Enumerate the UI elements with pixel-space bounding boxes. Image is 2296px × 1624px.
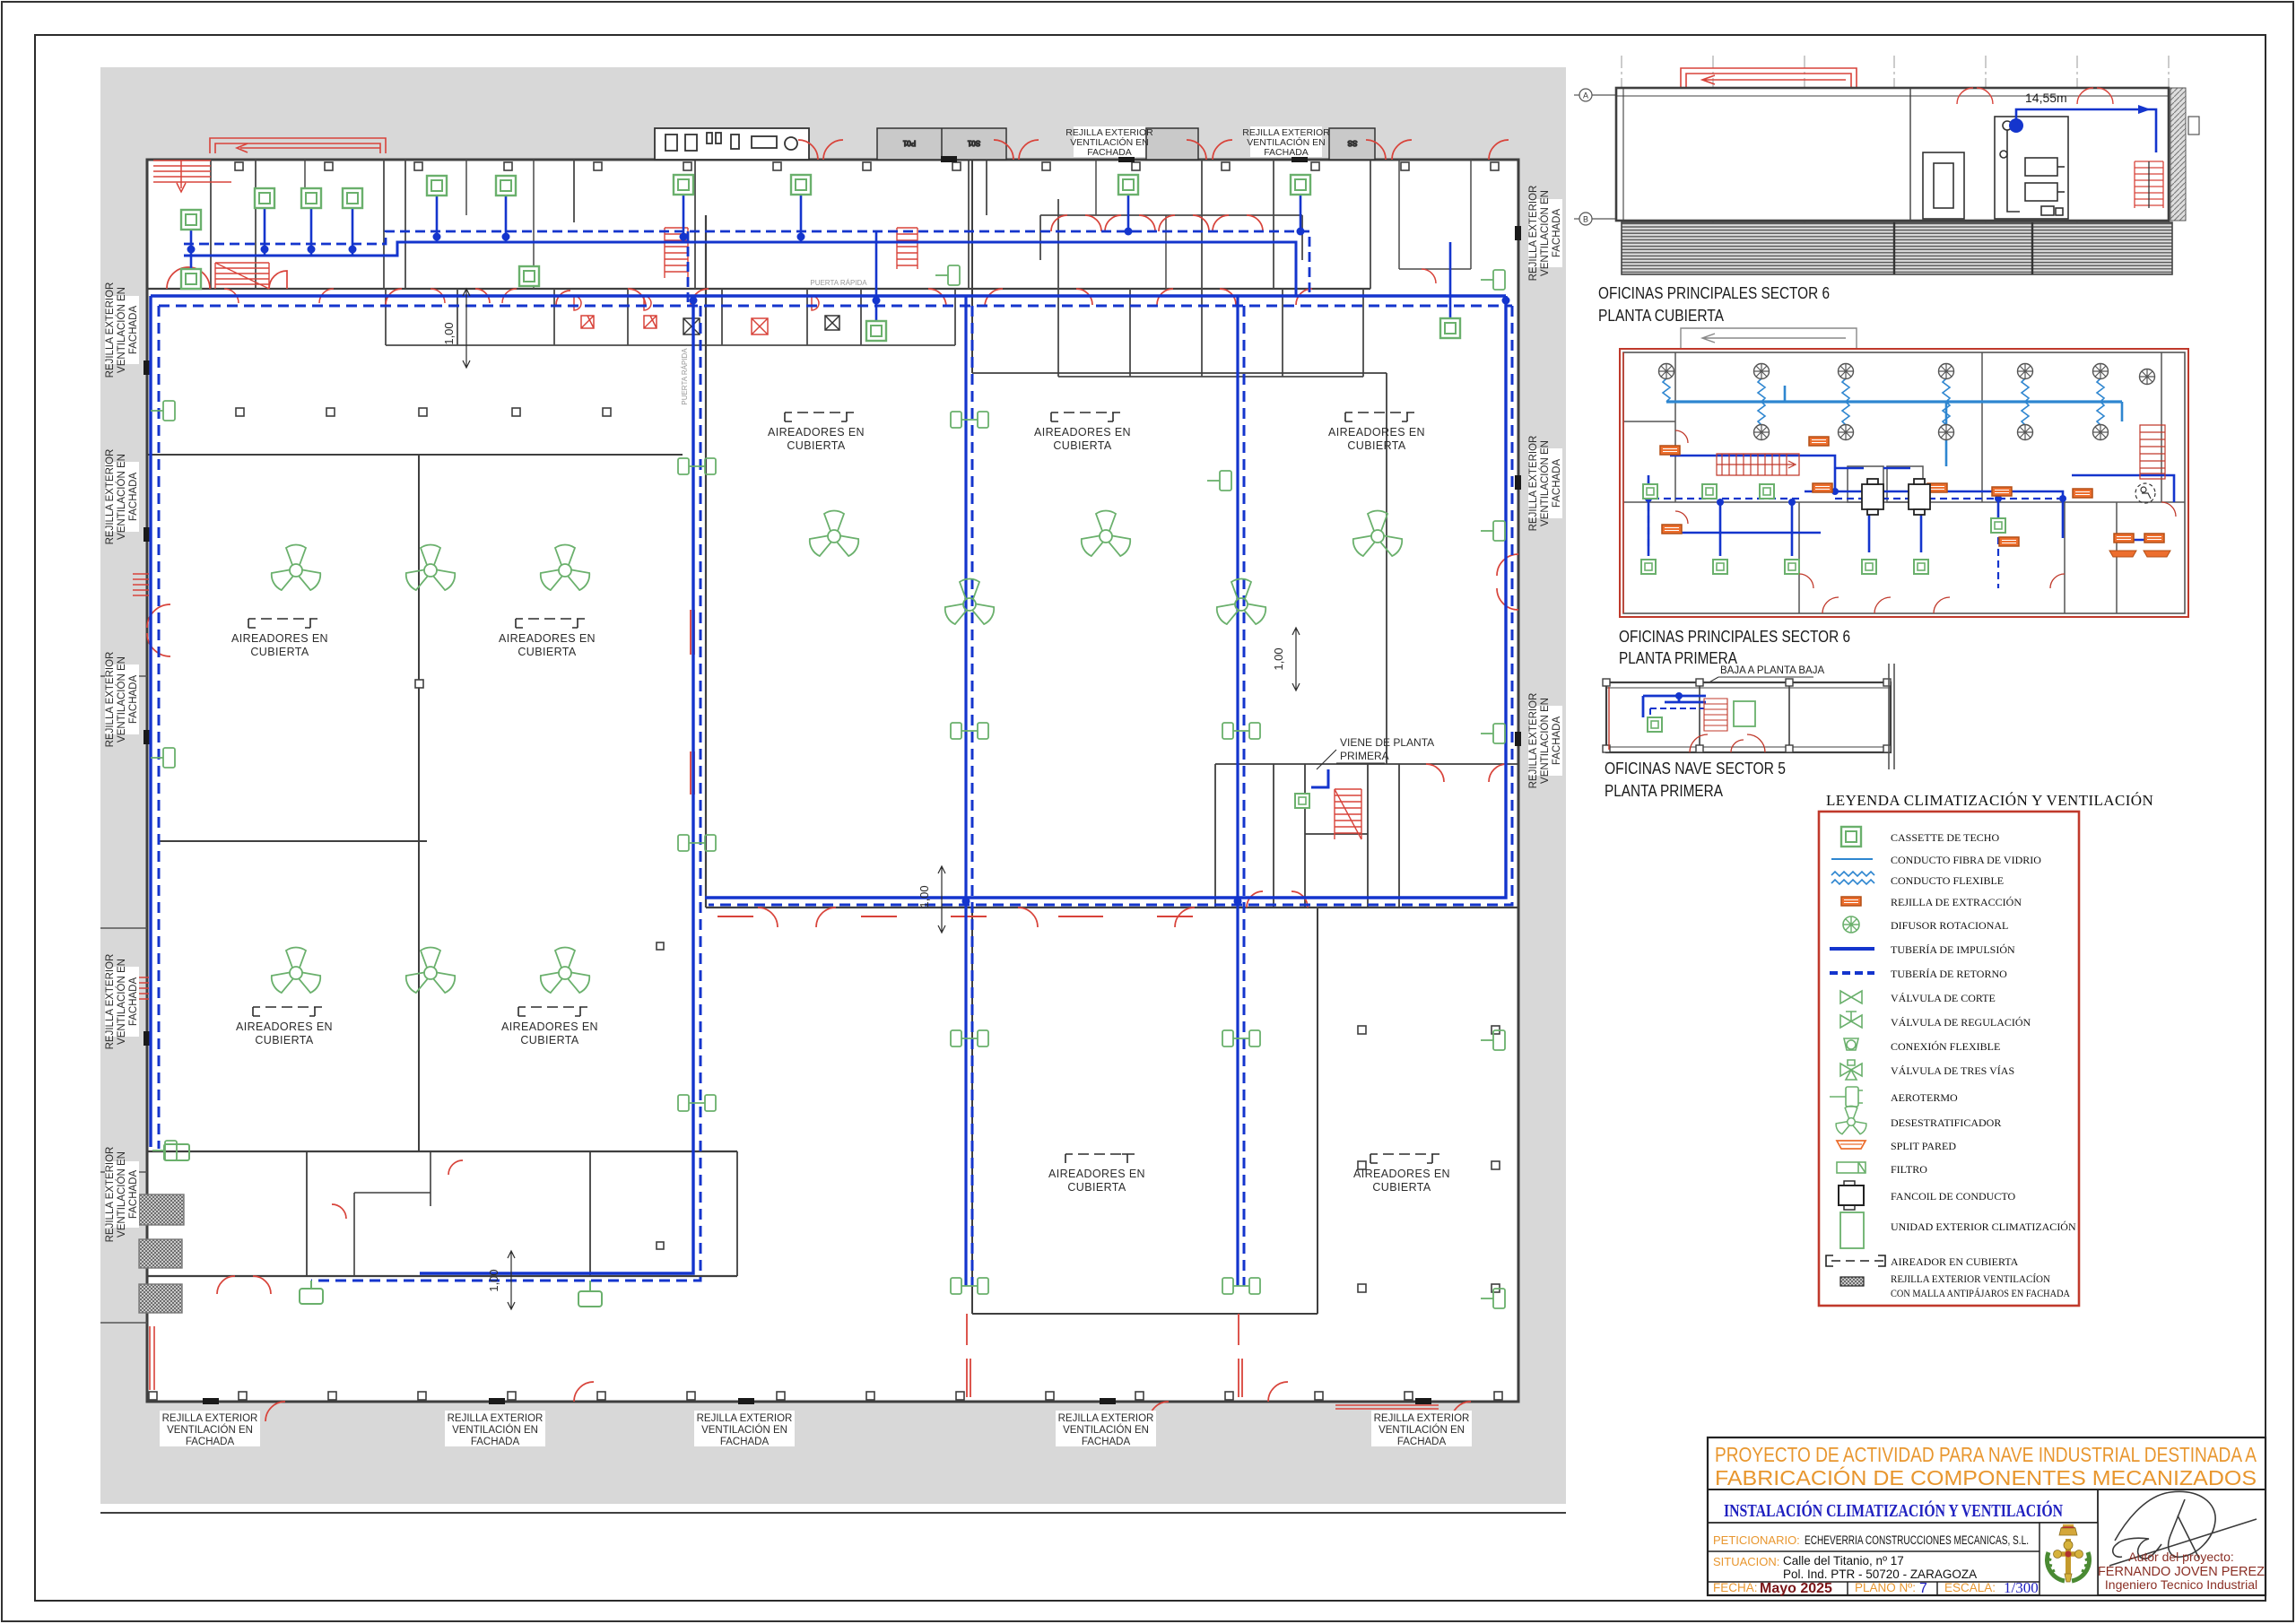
svg-text:AIREADORES EN: AIREADORES EN	[768, 426, 865, 439]
svg-text:VIENE DE PLANTA: VIENE DE PLANTA	[1340, 736, 1434, 749]
svg-text:OFICINAS PRINCIPALES SECTOR 6: OFICINAS PRINCIPALES SECTOR 6	[1598, 284, 1830, 302]
svg-text:SITUACION:: SITUACION:	[1713, 1555, 1779, 1568]
svg-text:AIREADORES EN: AIREADORES EN	[1048, 1168, 1145, 1180]
svg-text:CUBIERTA: CUBIERTA	[250, 646, 309, 658]
svg-text:S01: S01	[967, 139, 980, 147]
svg-text:REJILLA EXTERIOR VENTILACÍON: REJILLA EXTERIOR VENTILACÍON	[1891, 1272, 2050, 1285]
svg-text:TUBERÍA DE IMPULSIÓN: TUBERÍA DE IMPULSIÓN	[1891, 943, 2015, 956]
svg-text:AIREADORES EN: AIREADORES EN	[1328, 426, 1425, 439]
svg-text:CUBIERTA: CUBIERTA	[520, 1034, 579, 1046]
svg-text:Pol. Ind. PTR - 50720 - ZARAGO: Pol. Ind. PTR - 50720 - ZARAGOZA	[1783, 1568, 1977, 1581]
svg-text:VÁLVULA DE REGULACIÓN: VÁLVULA DE REGULACIÓN	[1891, 1016, 2031, 1029]
svg-text:PLANTA PRIMERA: PLANTA PRIMERA	[1605, 782, 1723, 800]
svg-text:AEROTERMO: AEROTERMO	[1891, 1091, 1958, 1104]
svg-text:1,00: 1,00	[442, 322, 456, 344]
svg-text:1,00: 1,00	[1272, 647, 1285, 670]
svg-text:CASSETTE DE TECHO: CASSETTE DE TECHO	[1891, 831, 1999, 844]
svg-text:SPLIT PARED: SPLIT PARED	[1891, 1140, 1956, 1152]
svg-text:FILTRO: FILTRO	[1891, 1163, 1927, 1176]
svg-text:AIREADORES EN: AIREADORES EN	[1034, 426, 1131, 439]
svg-text:TUBERÍA DE RETORNO: TUBERÍA DE RETORNO	[1891, 968, 2007, 980]
svg-text:1,00: 1,00	[918, 885, 931, 908]
svg-text:FABRICACIÓN DE COMPONENTES MEC: FABRICACIÓN DE COMPONENTES MECANIZADOS	[1715, 1466, 2257, 1489]
svg-text:FECHA:: FECHA:	[1713, 1581, 1758, 1594]
svg-text:P01: P01	[902, 139, 916, 147]
svg-text:PRIMERA: PRIMERA	[1340, 750, 1389, 762]
svg-text:Mayo 2025: Mayo 2025	[1760, 1581, 1832, 1596]
svg-text:REJILLA DE EXTRACCIÓN: REJILLA DE EXTRACCIÓN	[1891, 896, 2022, 908]
svg-text:UNIDAD EXTERIOR CLIMATIZACIÓN: UNIDAD EXTERIOR CLIMATIZACIÓN	[1891, 1220, 2076, 1233]
svg-text:PLANO Nº:: PLANO Nº:	[1855, 1581, 1916, 1594]
svg-text:Calle del Titanio, nº 17: Calle del Titanio, nº 17	[1783, 1554, 1904, 1568]
svg-text:14,55m: 14,55m	[2025, 91, 2067, 105]
svg-text:OFICINAS NAVE SECTOR 5: OFICINAS NAVE SECTOR 5	[1605, 760, 1786, 777]
svg-text:CONDUCTO FLEXIBLE: CONDUCTO FLEXIBLE	[1891, 874, 2004, 887]
svg-text:CUBIERTA: CUBIERTA	[1347, 439, 1406, 452]
svg-text:PLANTA PRIMERA: PLANTA PRIMERA	[1619, 649, 1737, 667]
svg-text:CUBIERTA: CUBIERTA	[255, 1034, 314, 1046]
svg-text:VÁLVULA DE CORTE: VÁLVULA DE CORTE	[1891, 992, 1996, 1004]
svg-text:FANCOIL DE CONDUCTO: FANCOIL DE CONDUCTO	[1891, 1190, 2015, 1203]
svg-text:CUBIERTA: CUBIERTA	[1053, 439, 1112, 452]
svg-text:PUERTA RÁPIDA: PUERTA RÁPIDA	[810, 279, 867, 287]
svg-text:1/300: 1/300	[2004, 1579, 2039, 1596]
svg-text:7: 7	[1919, 1581, 1927, 1596]
svg-text:1,00: 1,00	[487, 1269, 500, 1291]
svg-text:AIREADORES EN: AIREADORES EN	[231, 632, 328, 645]
svg-text:AIREADORES EN: AIREADORES EN	[1353, 1168, 1450, 1180]
svg-text:DESESTRATIFICADOR: DESESTRATIFICADOR	[1891, 1116, 2001, 1129]
svg-text:CUBIERTA: CUBIERTA	[1372, 1181, 1431, 1194]
svg-text:LEYENDA CLIMATIZACIÓN Y VENTIL: LEYENDA CLIMATIZACIÓN Y VENTILACIÓN	[1826, 792, 2153, 809]
svg-text:CON MALLA ANTIPÁJAROS EN FACHA: CON MALLA ANTIPÁJAROS EN FACHADA	[1891, 1287, 2070, 1299]
svg-text:DIFUSOR ROTACIONAL: DIFUSOR ROTACIONAL	[1891, 919, 2008, 932]
svg-text:BAJA A PLANTA BAJA: BAJA A PLANTA BAJA	[1720, 665, 1824, 676]
svg-text:CUBIERTA: CUBIERTA	[517, 646, 577, 658]
svg-text:VÁLVULA DE TRES VÍAS: VÁLVULA DE TRES VÍAS	[1891, 1064, 2014, 1077]
svg-text:Autor del proyecto:: Autor del proyecto:	[2128, 1550, 2234, 1564]
svg-text:Ingeniero Tecnico Industrial: Ingeniero Tecnico Industrial	[2105, 1577, 2257, 1592]
svg-text:A: A	[1583, 91, 1588, 100]
svg-text:AIREADOR EN CUBIERTA: AIREADOR EN CUBIERTA	[1891, 1255, 2019, 1268]
svg-text:B: B	[1583, 215, 1588, 224]
svg-text:SS: SS	[1348, 139, 1358, 147]
svg-text:CONDUCTO FIBRA DE VIDRIO: CONDUCTO FIBRA DE VIDRIO	[1891, 854, 2041, 866]
svg-text:ESCALA:: ESCALA:	[1944, 1581, 1996, 1594]
svg-text:CONEXIÓN FLEXIBLE: CONEXIÓN FLEXIBLE	[1891, 1040, 2000, 1053]
svg-text:PLANTA CUBIERTA: PLANTA CUBIERTA	[1598, 307, 1724, 325]
svg-text:PUERTA RÁPIDA: PUERTA RÁPIDA	[681, 348, 689, 405]
svg-text:AIREADORES EN: AIREADORES EN	[236, 1020, 333, 1033]
svg-text:OFICINAS PRINCIPALES SECTOR 6: OFICINAS PRINCIPALES SECTOR 6	[1619, 628, 1850, 646]
svg-text:AIREADORES EN: AIREADORES EN	[499, 632, 596, 645]
svg-text:INSTALACIÓN CLIMATIZACIÓN Y VE: INSTALACIÓN CLIMATIZACIÓN Y VENTILACIÓN	[1724, 1501, 2063, 1521]
svg-text:ECHEVERRIA CONSTRUCCIONES MECA: ECHEVERRIA CONSTRUCCIONES MECANICAS, S.L…	[1805, 1533, 2029, 1547]
svg-text:AIREADORES EN: AIREADORES EN	[501, 1020, 598, 1033]
svg-text:CUBIERTA: CUBIERTA	[787, 439, 846, 452]
svg-text:PROYECTO DE ACTIVIDAD PARA NAV: PROYECTO DE ACTIVIDAD PARA NAVE INDUSTRI…	[1715, 1443, 2257, 1466]
svg-text:PETICIONARIO:: PETICIONARIO:	[1713, 1533, 1800, 1547]
svg-text:CUBIERTA: CUBIERTA	[1067, 1181, 1126, 1194]
